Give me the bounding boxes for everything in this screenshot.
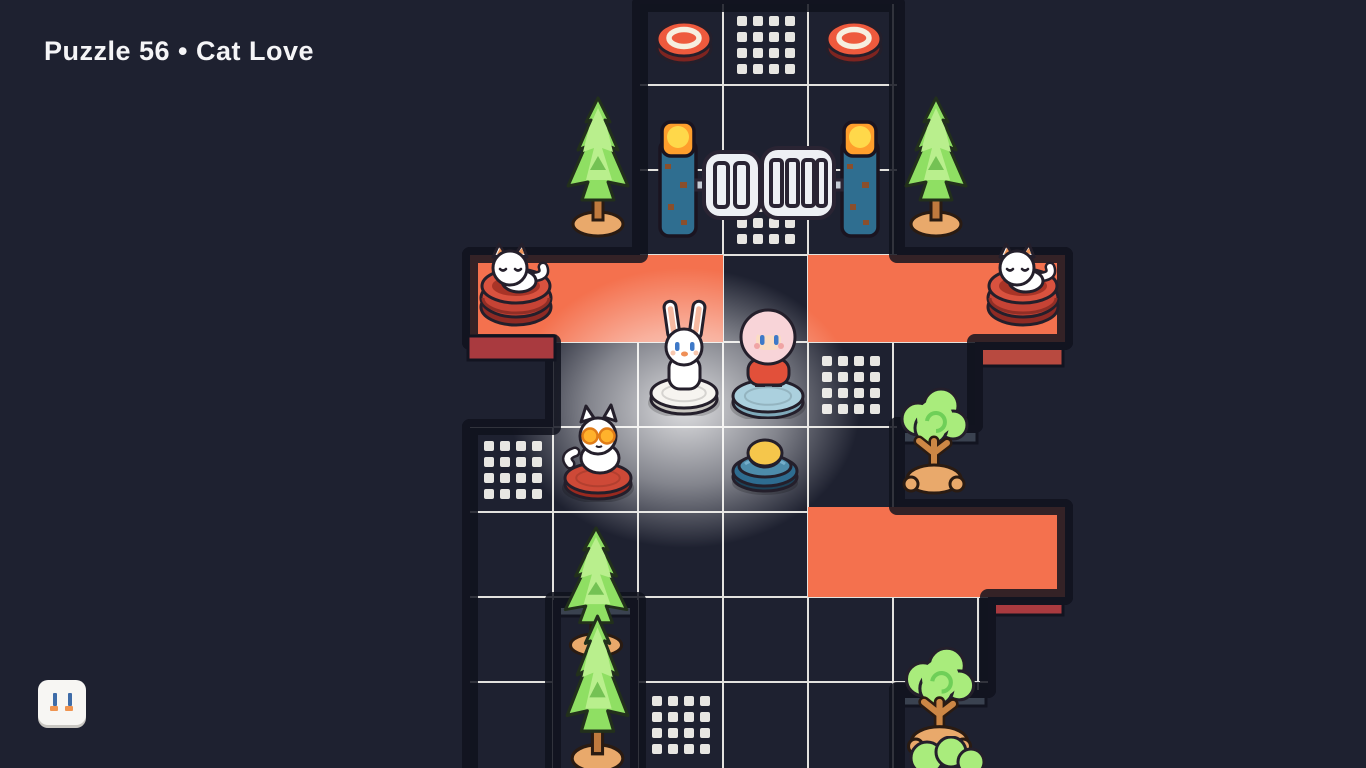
cat-bed-sprite — [978, 241, 1068, 335]
girl-on-vacuum[interactable] — [729, 297, 808, 419]
rabbit-on-vacuum[interactable] — [647, 297, 722, 416]
cat-on-vacuum[interactable] — [555, 396, 642, 502]
girl-vacuum-sprite — [729, 297, 808, 419]
cat-bed-sleeping-cat — [978, 241, 1068, 335]
pressure-plate-sprite — [823, 12, 885, 68]
button-vacuum-dock[interactable] — [727, 431, 804, 496]
pine-tree-sprite — [555, 614, 640, 768]
rabbit-vacuum-sprite — [647, 297, 722, 416]
red-pressure-plate — [823, 12, 885, 68]
pine-tree — [556, 96, 640, 238]
game-stage: Puzzle 56 • Cat Love — [0, 0, 1366, 768]
red-pressure-plate — [653, 12, 715, 68]
cat-bed-sprite — [471, 241, 561, 335]
round-tree — [889, 381, 978, 505]
pine-tree-sprite — [556, 96, 640, 238]
round-tree-sprite — [889, 381, 978, 505]
dock-sprite — [727, 431, 804, 496]
page-title: Puzzle 56 • Cat Love — [44, 36, 314, 67]
bush-sprite — [903, 736, 991, 768]
pine-tree-sprite — [894, 96, 978, 238]
cat-bed-sleeping-cat — [471, 241, 561, 335]
gate-sprite — [658, 120, 880, 242]
carpet-side-strips — [468, 336, 555, 360]
pause-icon — [50, 693, 59, 712]
cat-vacuum-sprite — [555, 396, 642, 502]
pine-tree — [894, 96, 978, 238]
pressure-plate-sprite — [653, 12, 715, 68]
pine-tree — [555, 614, 640, 768]
pause-icon — [65, 693, 74, 712]
sliding-gate — [658, 120, 880, 242]
pause-button[interactable] — [38, 680, 86, 725]
bush — [903, 736, 991, 768]
